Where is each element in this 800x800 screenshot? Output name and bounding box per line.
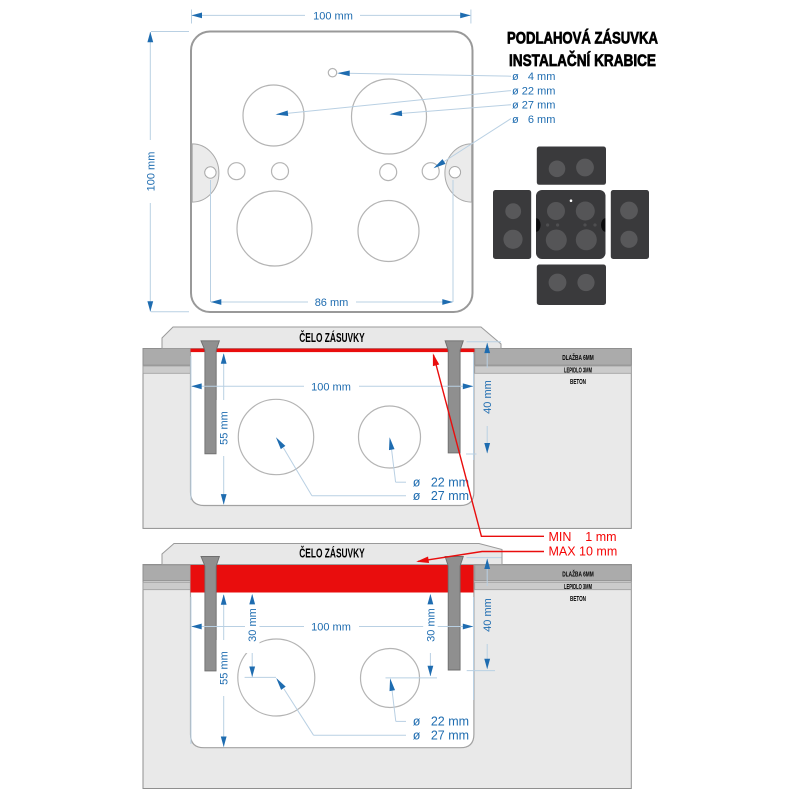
svg-text:LEPIDLO 3MM: LEPIDLO 3MM (564, 584, 592, 591)
svg-text:ø 6 mm: ø 6 mm (512, 114, 555, 126)
svg-text:30 mm: 30 mm (247, 608, 259, 642)
svg-text:ø 27 mm: ø 27 mm (413, 728, 469, 742)
svg-text:ø 22 mm: ø 22 mm (413, 715, 469, 729)
svg-text:DLAŽBA 6MM: DLAŽBA 6MM (562, 353, 594, 362)
svg-text:86 mm: 86 mm (315, 297, 349, 309)
svg-text:MIN 1 mm: MIN 1 mm (549, 530, 617, 544)
svg-text:PODLAHOVÁ ZÁSUVKA: PODLAHOVÁ ZÁSUVKA (507, 29, 658, 48)
svg-text:55 mm: 55 mm (219, 651, 231, 685)
svg-text:100 mm: 100 mm (311, 381, 351, 393)
svg-text:ČELO ZÁSUVKY: ČELO ZÁSUVKY (299, 330, 365, 345)
svg-text:40 mm: 40 mm (482, 598, 494, 632)
svg-text:MAX 10 mm: MAX 10 mm (549, 544, 618, 558)
svg-text:BETON: BETON (570, 596, 586, 603)
svg-text:ø 27 mm: ø 27 mm (413, 489, 469, 503)
svg-text:ø 4 mm: ø 4 mm (512, 71, 555, 83)
svg-text:ø 22 mm: ø 22 mm (512, 86, 555, 98)
svg-text:DLAŽBA 6MM: DLAŽBA 6MM (562, 569, 594, 578)
svg-text:ø 22 mm: ø 22 mm (413, 475, 469, 489)
svg-text:LEPIDLO 3MM: LEPIDLO 3MM (564, 367, 592, 374)
svg-text:BETON: BETON (570, 379, 586, 386)
svg-text:30 mm: 30 mm (425, 608, 437, 642)
svg-text:100 mm: 100 mm (313, 10, 353, 22)
svg-text:ø 27 mm: ø 27 mm (512, 100, 555, 112)
svg-text:100 mm: 100 mm (311, 622, 351, 634)
svg-text:55 mm: 55 mm (219, 411, 231, 445)
svg-text:ČELO ZÁSUVKY: ČELO ZÁSUVKY (299, 545, 365, 560)
svg-text:INSTALAČNÍ KRABICE: INSTALAČNÍ KRABICE (509, 51, 656, 70)
svg-text:100 mm: 100 mm (145, 152, 157, 192)
svg-text:40 mm: 40 mm (482, 380, 494, 414)
